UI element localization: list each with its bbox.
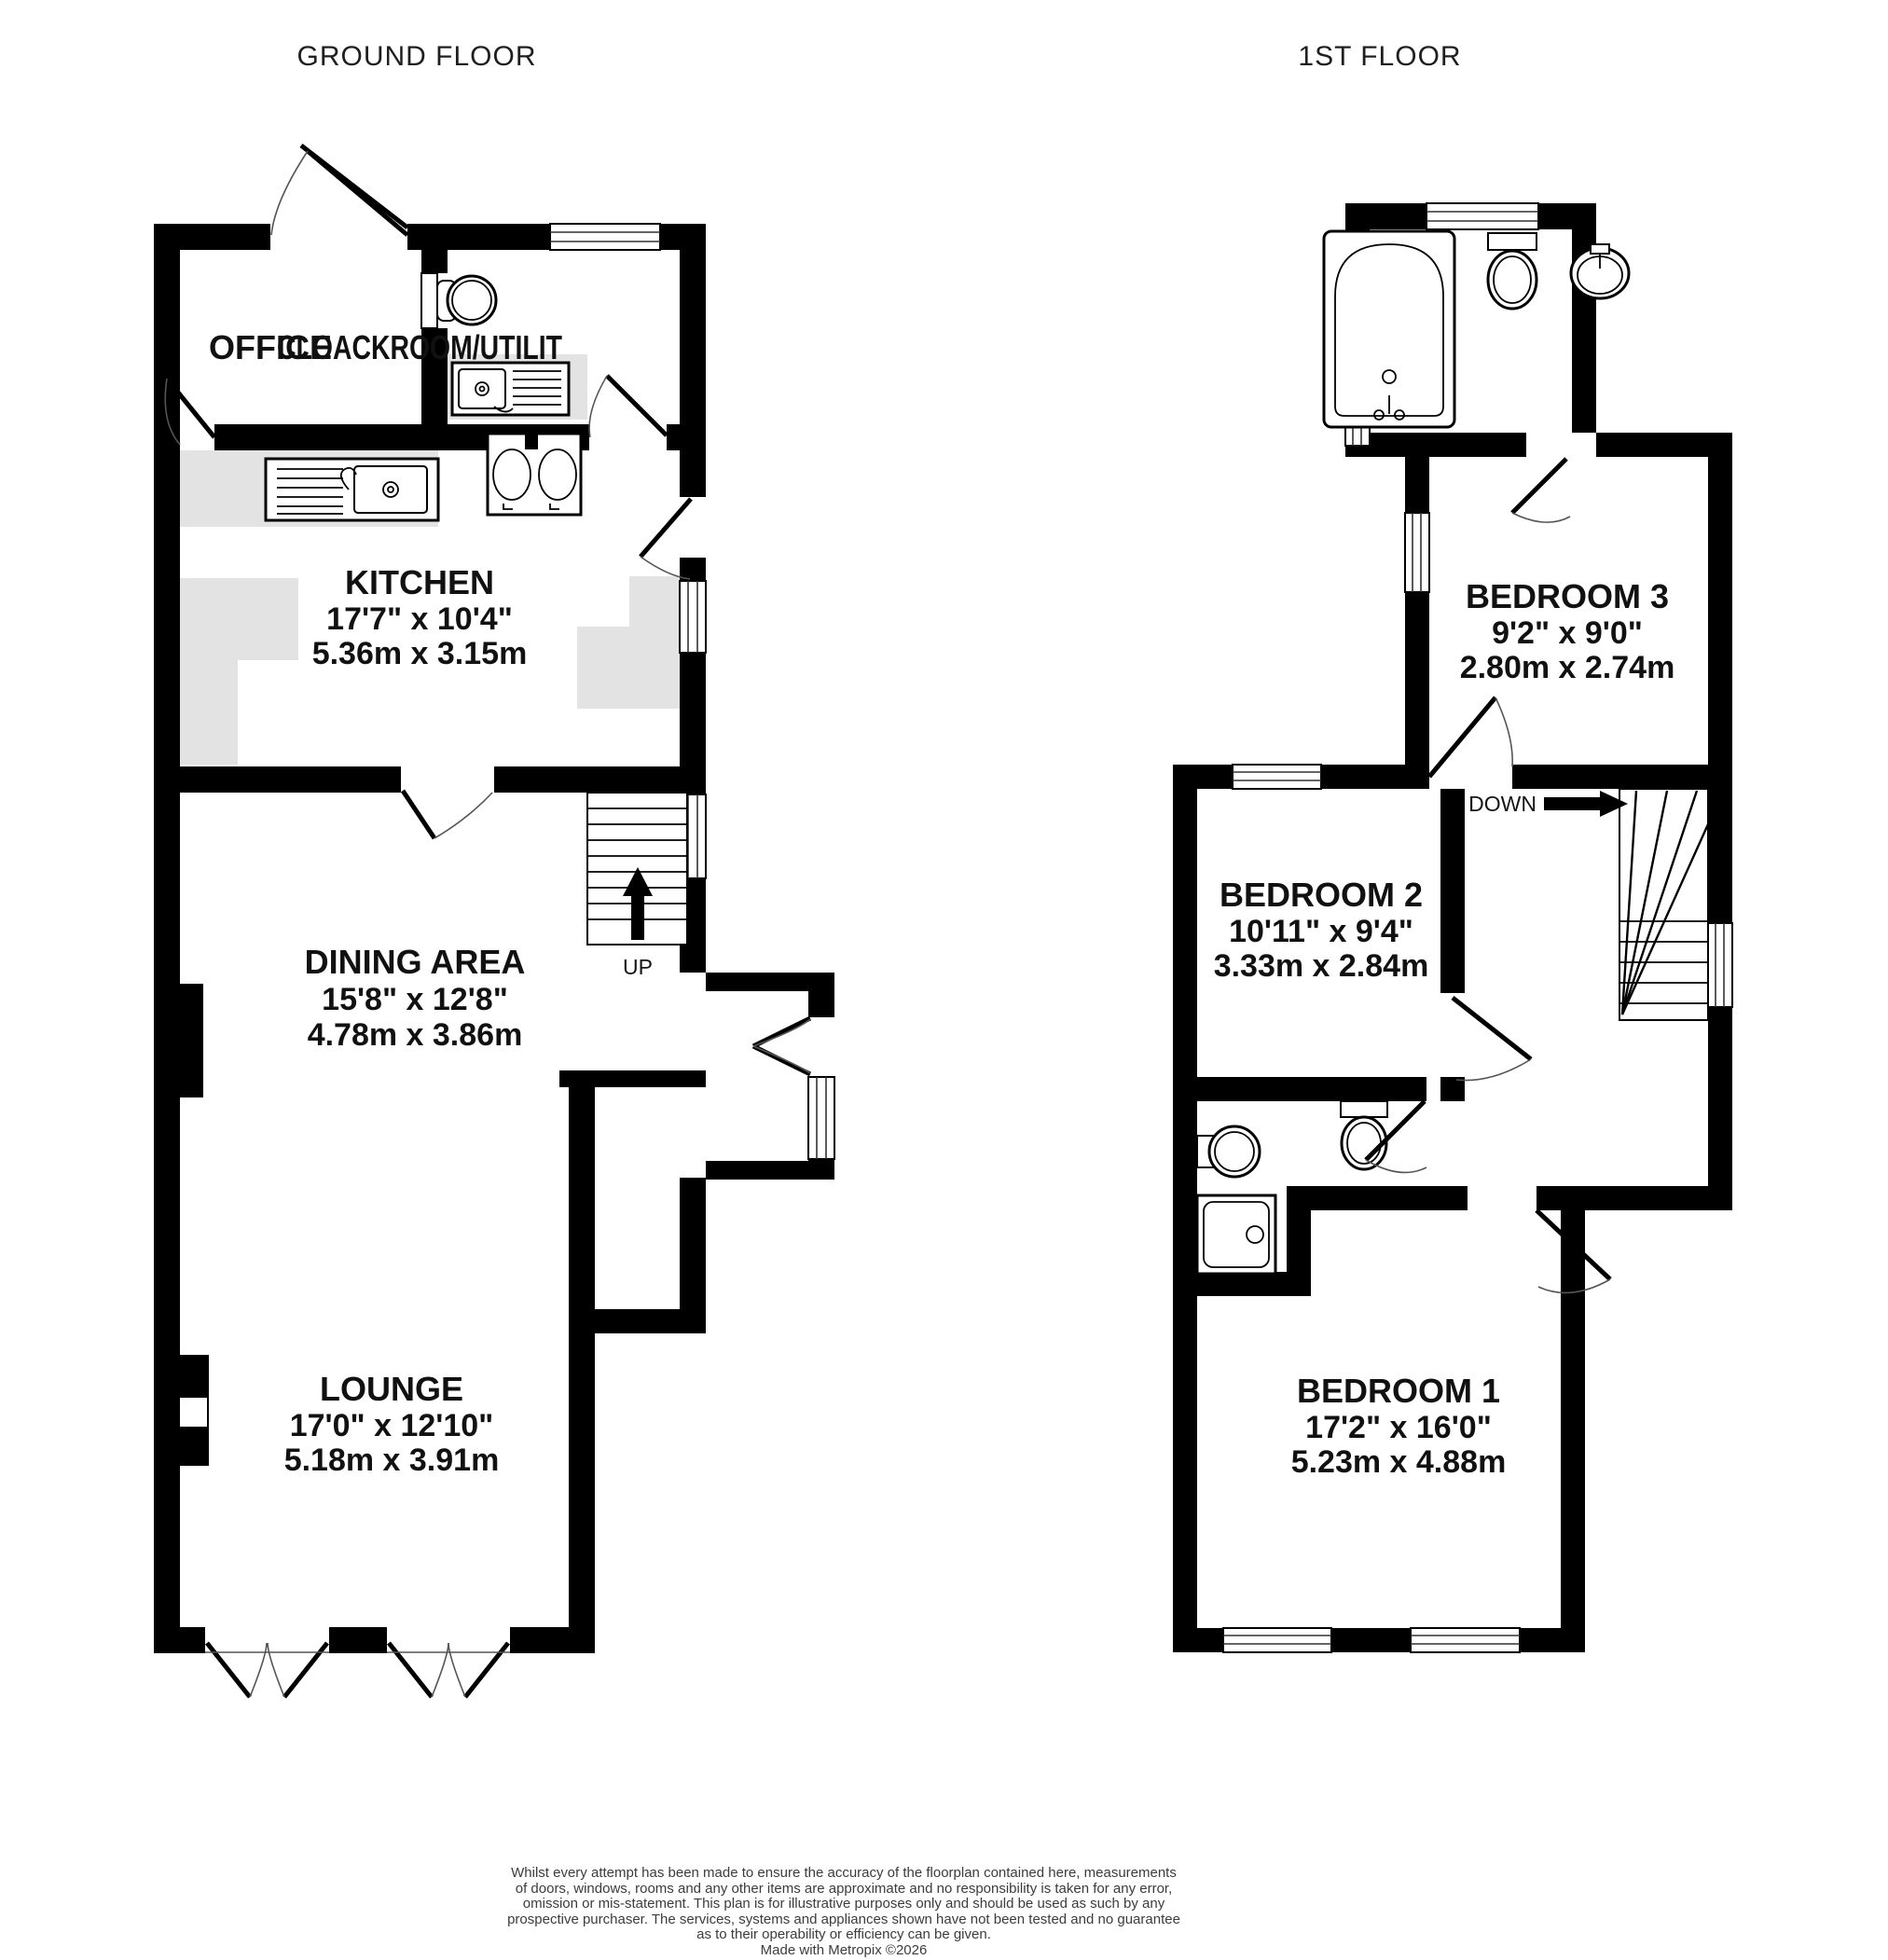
floorplan-page: GROUND FLOOR 1ST FLOOR bbox=[0, 0, 1888, 1960]
svg-text:17'7" x 10'4": 17'7" x 10'4" bbox=[326, 601, 513, 637]
svg-text:9'2" x 9'0": 9'2" x 9'0" bbox=[1492, 615, 1643, 651]
bathtub-icon bbox=[1324, 231, 1454, 427]
down-label: DOWN bbox=[1468, 792, 1537, 816]
cloakroom-door bbox=[589, 376, 667, 437]
kitchen-counter-right bbox=[577, 576, 687, 709]
svg-text:5.23m x 4.88m: 5.23m x 4.88m bbox=[1291, 1444, 1507, 1480]
bathroom-door bbox=[1512, 459, 1570, 522]
shower-room-toilet-icon bbox=[1341, 1101, 1387, 1169]
up-label: UP bbox=[623, 955, 653, 979]
svg-text:KITCHEN: KITCHEN bbox=[345, 563, 494, 601]
kitchen-dining-door bbox=[403, 791, 492, 838]
kitchen-counter-left bbox=[180, 578, 298, 765]
svg-text:DINING AREA: DINING AREA bbox=[305, 943, 526, 981]
svg-text:10'11" x 9'4": 10'11" x 9'4" bbox=[1229, 914, 1413, 949]
svg-text:4.78m x 3.86m: 4.78m x 3.86m bbox=[308, 1017, 523, 1053]
kitchen-label: KITCHEN 17'7" x 10'4" 5.36m x 3.15m bbox=[312, 563, 528, 671]
floorplan-drawing: OFFICE CLOACKROOM/UTILIT KITCHEN 17'7" x… bbox=[0, 0, 1888, 1960]
svg-text:LOUNGE: LOUNGE bbox=[320, 1370, 463, 1408]
disclaimer-line: as to their operability or efficiency ca… bbox=[284, 1927, 1403, 1943]
window bbox=[1708, 923, 1732, 1007]
chimney-breast bbox=[180, 1355, 208, 1398]
svg-text:BEDROOM 1: BEDROOM 1 bbox=[1297, 1372, 1500, 1410]
window bbox=[808, 1077, 834, 1159]
kitchen-sink-icon bbox=[266, 459, 438, 520]
disclaimer-line: prospective purchaser. The services, sys… bbox=[284, 1912, 1403, 1928]
down-arrow-icon bbox=[1544, 791, 1628, 817]
svg-text:2.80m x 2.74m: 2.80m x 2.74m bbox=[1460, 650, 1675, 685]
window bbox=[680, 581, 706, 653]
french-doors-right bbox=[387, 1643, 510, 1697]
disclaimer: Whilst every attempt has been made to en… bbox=[284, 1866, 1403, 1958]
porch-double-doors bbox=[753, 1018, 810, 1074]
cloakroom-toilet-icon bbox=[421, 273, 496, 328]
bedroom2-door bbox=[1453, 998, 1531, 1081]
disclaimer-line: omission or mis-statement. This plan is … bbox=[284, 1897, 1403, 1912]
front-door bbox=[271, 145, 407, 235]
cloakroom-label: CLOACKROOM/UTILIT bbox=[277, 328, 562, 366]
dining-label: DINING AREA 15'8" x 12'8" 4.78m x 3.86m bbox=[305, 943, 526, 1053]
shower-icon bbox=[1197, 1195, 1275, 1274]
svg-text:17'2" x 16'0": 17'2" x 16'0" bbox=[1305, 1410, 1492, 1445]
shower-room-sink-icon bbox=[1197, 1126, 1260, 1177]
french-doors-left bbox=[205, 1643, 329, 1697]
svg-text:3.33m x 2.84m: 3.33m x 2.84m bbox=[1214, 948, 1429, 984]
svg-text:5.36m x 3.15m: 5.36m x 3.15m bbox=[312, 636, 528, 671]
bedroom1-label: BEDROOM 1 17'2" x 16'0" 5.23m x 4.88m bbox=[1291, 1372, 1507, 1480]
first-stairs bbox=[1544, 789, 1708, 1020]
window bbox=[1405, 513, 1429, 592]
ground-stairs bbox=[587, 793, 687, 945]
window bbox=[1223, 1628, 1331, 1652]
disclaimer-line: Whilst every attempt has been made to en… bbox=[284, 1866, 1403, 1882]
bedroom2-label: BEDROOM 2 10'11" x 9'4" 3.33m x 2.84m bbox=[1214, 876, 1429, 984]
window bbox=[1411, 1628, 1520, 1652]
window bbox=[1233, 765, 1321, 789]
disclaimer-line: of doors, windows, rooms and any other i… bbox=[284, 1882, 1403, 1898]
bedroom3-door bbox=[1429, 697, 1512, 777]
first-floor-plan: BEDROOM 3 9'2" x 9'0" 2.80m x 2.74m BEDR… bbox=[1173, 203, 1732, 1652]
washer-dryer-icon bbox=[488, 434, 581, 515]
metropix-credit: Made with Metropix ©2026 bbox=[284, 1943, 1403, 1959]
utility-sink-icon bbox=[452, 363, 569, 415]
svg-text:BEDROOM 2: BEDROOM 2 bbox=[1220, 876, 1423, 914]
bedroom3-label: BEDROOM 3 9'2" x 9'0" 2.80m x 2.74m bbox=[1460, 577, 1675, 685]
window bbox=[550, 224, 660, 250]
bathroom-toilet-icon bbox=[1488, 233, 1537, 309]
window bbox=[1426, 203, 1538, 229]
svg-text:15'8" x 12'8": 15'8" x 12'8" bbox=[322, 982, 508, 1017]
svg-text:17'0" x 12'10": 17'0" x 12'10" bbox=[290, 1408, 494, 1443]
svg-text:5.18m x 3.91m: 5.18m x 3.91m bbox=[284, 1442, 500, 1478]
ground-floor-plan: OFFICE CLOACKROOM/UTILIT KITCHEN 17'7" x… bbox=[154, 145, 834, 1697]
lounge-label: LOUNGE 17'0" x 12'10" 5.18m x 3.91m bbox=[284, 1370, 500, 1478]
svg-text:BEDROOM 3: BEDROOM 3 bbox=[1466, 577, 1669, 615]
